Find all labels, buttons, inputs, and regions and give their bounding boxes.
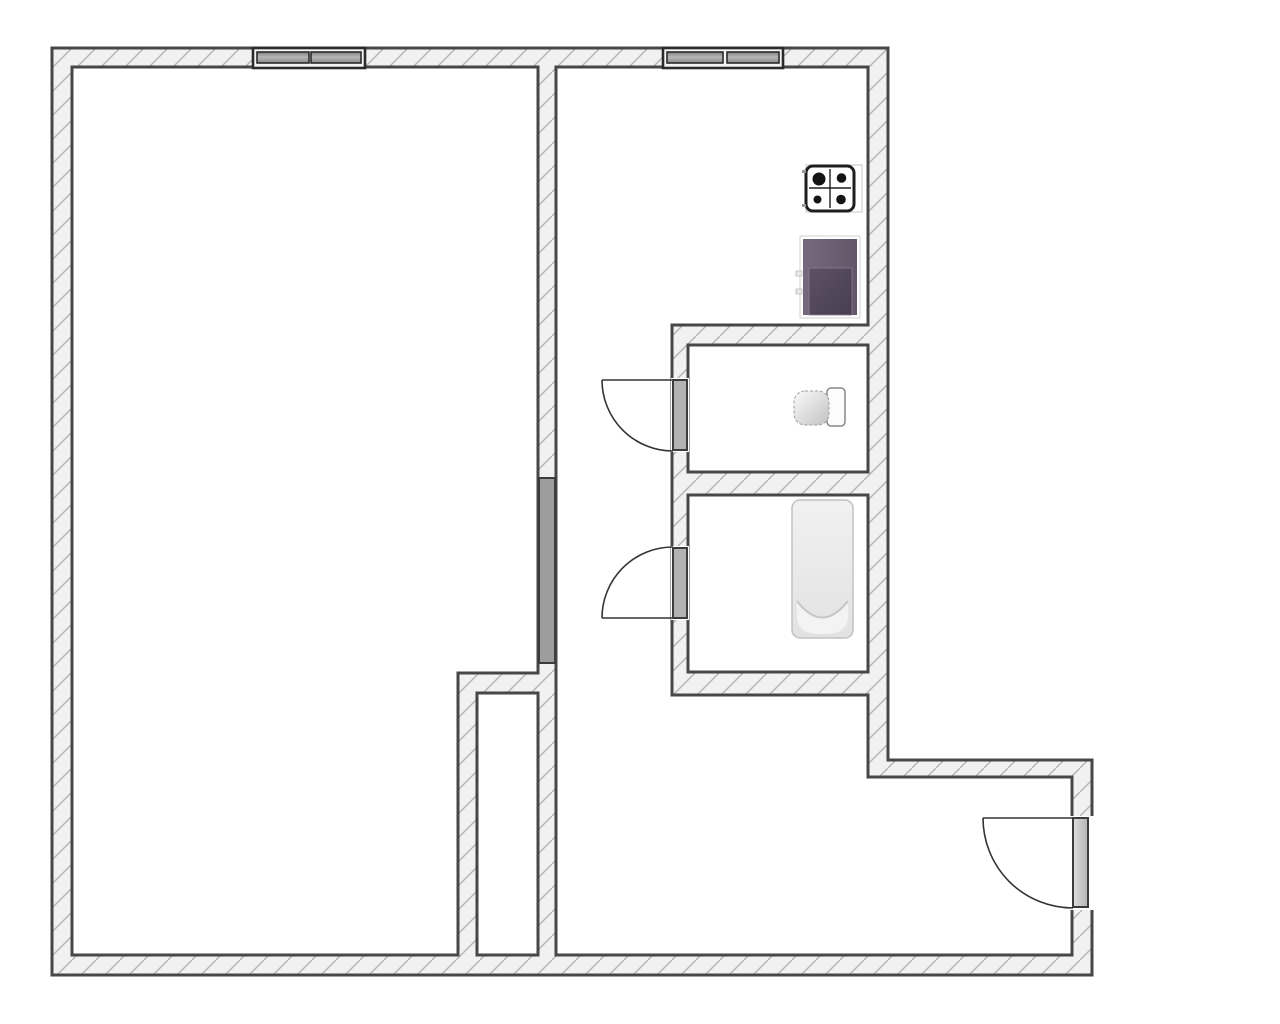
door-wc-swing-arc: [602, 380, 673, 451]
window-kitchen-pane-2: [727, 52, 779, 63]
stove-burner-3: [814, 196, 822, 204]
refrigerator-door-panel: [809, 268, 852, 315]
stove-tick-2: [802, 204, 806, 207]
door-living-room-leaf: [539, 478, 555, 663]
window-kitchen-pane-1: [667, 52, 723, 63]
wall-structure: [52, 48, 1092, 975]
window-living-room-pane-2: [311, 52, 361, 63]
door-wc-leaf: [673, 380, 687, 450]
stove-burner-2: [837, 173, 847, 183]
floor-plan: [0, 0, 1280, 1024]
toilet-tank: [827, 388, 845, 426]
refrigerator-hinge-2: [796, 289, 802, 294]
stove-burner-4: [836, 195, 846, 205]
floor-plan-canvas: [0, 0, 1280, 1024]
door-entrance-swing-arc: [983, 818, 1073, 908]
stove-burner-1: [813, 173, 826, 186]
window-living-room-pane-1: [257, 52, 309, 63]
stove-tick-1: [802, 170, 806, 173]
door-bathroom-leaf: [673, 548, 687, 618]
door-bathroom-swing-arc: [602, 547, 673, 618]
toilet-bowl: [794, 391, 829, 425]
door-entrance-leaf: [1073, 818, 1088, 907]
refrigerator-hinge-1: [796, 271, 802, 276]
